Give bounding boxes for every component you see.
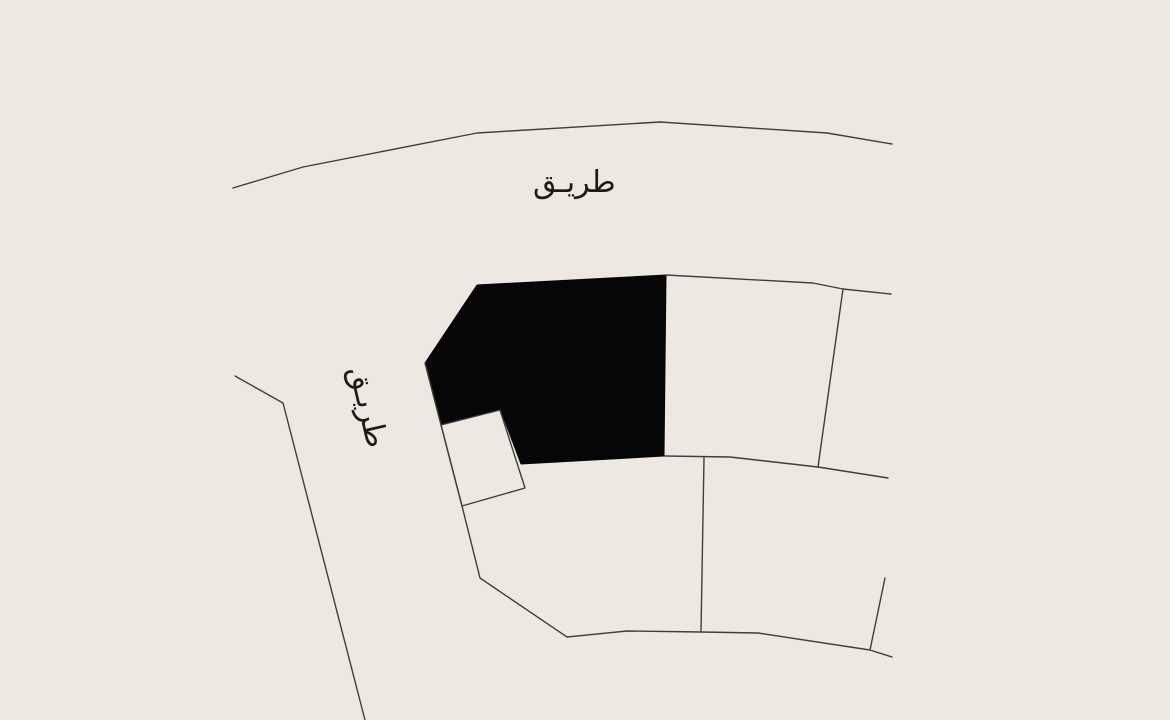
parcel-map-drawing bbox=[0, 0, 1170, 720]
parcel-corner-stub-line bbox=[870, 578, 885, 650]
road-label-top: طريـق bbox=[533, 168, 616, 198]
parcel-right-divider-line bbox=[818, 289, 843, 467]
road-edge-left-line bbox=[235, 376, 365, 720]
cadastral-map-canvas[interactable]: طريـق طريـق bbox=[0, 0, 1170, 720]
parcel-mid-boundary-line bbox=[665, 456, 888, 478]
parcel-top-boundary-line bbox=[666, 275, 891, 294]
parcel-lower-divider-line bbox=[701, 458, 704, 632]
